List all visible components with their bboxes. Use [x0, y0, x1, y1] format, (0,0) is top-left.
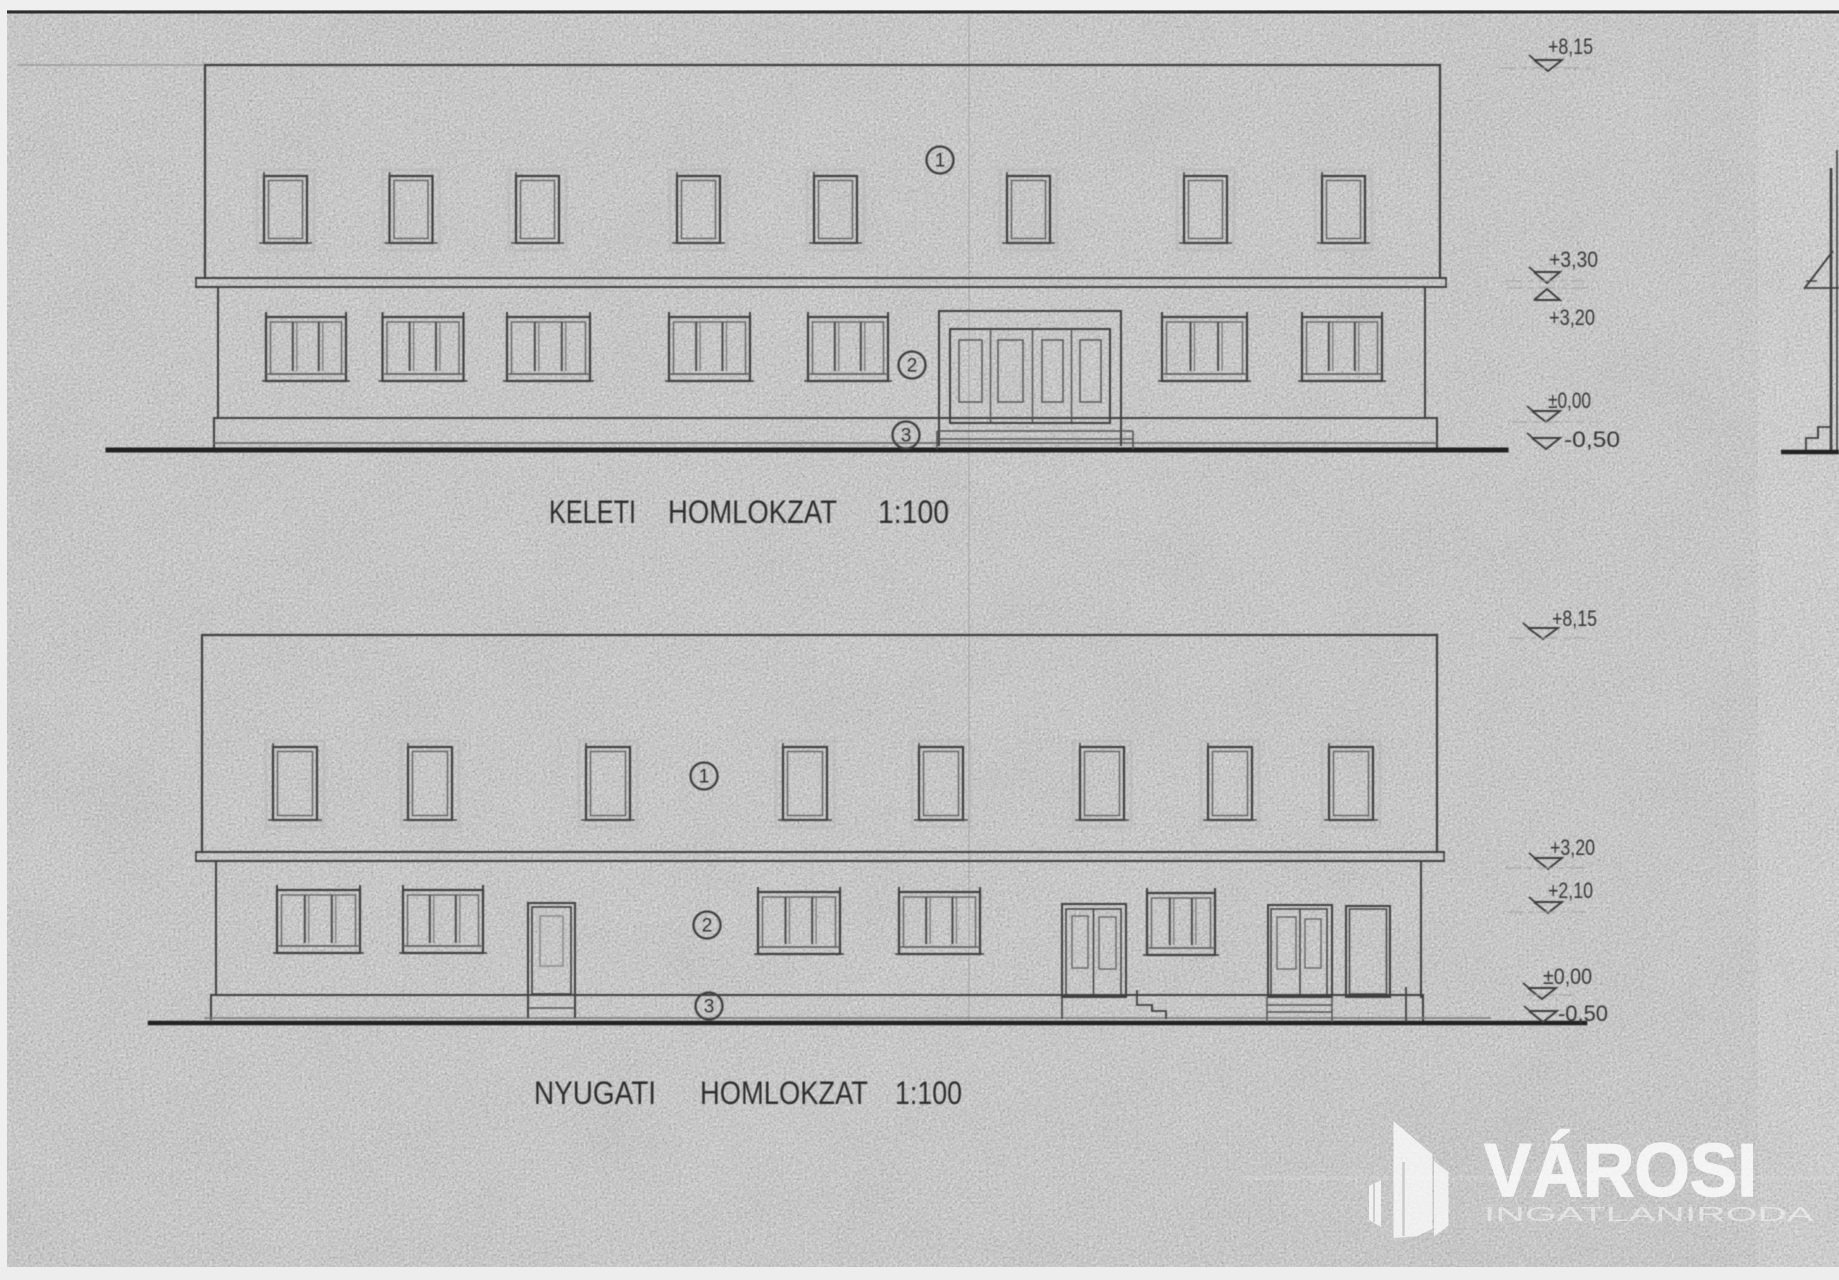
svg-text:3: 3 — [704, 997, 715, 1018]
svg-text:HOMLOKZAT: HOMLOKZAT — [700, 1075, 868, 1111]
svg-text:1:100: 1:100 — [895, 1075, 962, 1111]
svg-text:±0,00: ±0,00 — [1548, 388, 1591, 413]
svg-text:1:100: 1:100 — [878, 494, 949, 530]
svg-text:+8,15: +8,15 — [1548, 34, 1593, 59]
svg-text:INGATLANIRODA: INGATLANIRODA — [1484, 1203, 1815, 1226]
svg-text:NYUGATI: NYUGATI — [534, 1075, 656, 1111]
svg-text:+3,20: +3,20 — [1550, 835, 1595, 860]
svg-text:3: 3 — [901, 426, 912, 447]
svg-text:-0,50: -0,50 — [1564, 427, 1620, 452]
svg-text:1: 1 — [935, 151, 946, 172]
svg-text:2: 2 — [907, 356, 918, 377]
svg-text:+3,30: +3,30 — [1549, 247, 1598, 272]
svg-text:VÁROSI: VÁROSI — [1484, 1128, 1757, 1212]
svg-text:1: 1 — [699, 767, 710, 788]
svg-text:+2,10: +2,10 — [1548, 878, 1593, 903]
svg-text:2: 2 — [702, 916, 713, 937]
svg-text:-0,50: -0,50 — [1558, 1001, 1608, 1026]
svg-text:±0,00: ±0,00 — [1543, 964, 1592, 989]
svg-text:+3,20: +3,20 — [1549, 305, 1595, 330]
svg-text:HOMLOKZAT: HOMLOKZAT — [668, 494, 837, 530]
svg-text:KELETI: KELETI — [549, 494, 636, 530]
